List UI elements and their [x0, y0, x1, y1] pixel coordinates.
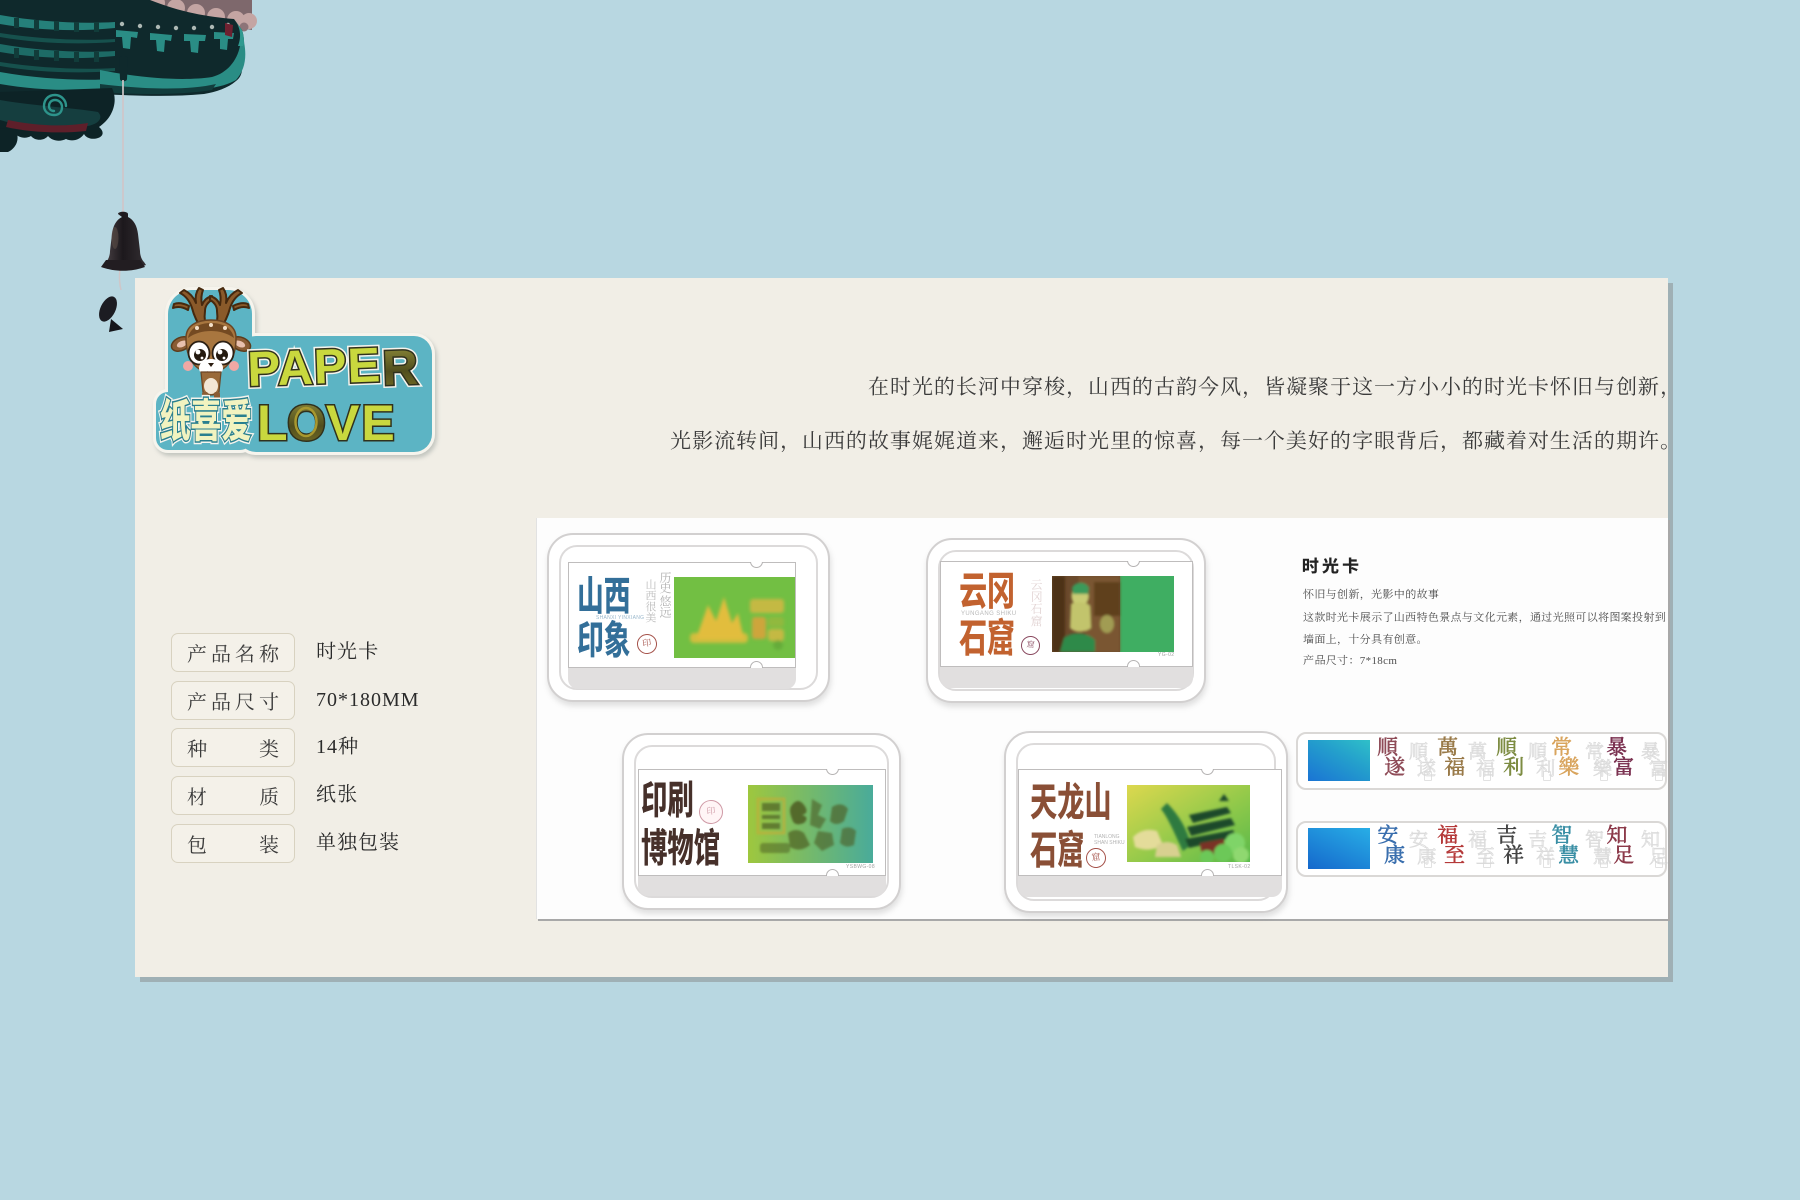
svg-text:VE: VE — [326, 395, 397, 451]
svg-text:R: R — [381, 341, 418, 396]
svg-text:L: L — [257, 395, 288, 451]
svg-text:PAPE: PAPE — [246, 338, 382, 397]
svg-text:O: O — [287, 395, 326, 451]
svg-text:纸喜爱: 纸喜爱 — [160, 385, 252, 451]
